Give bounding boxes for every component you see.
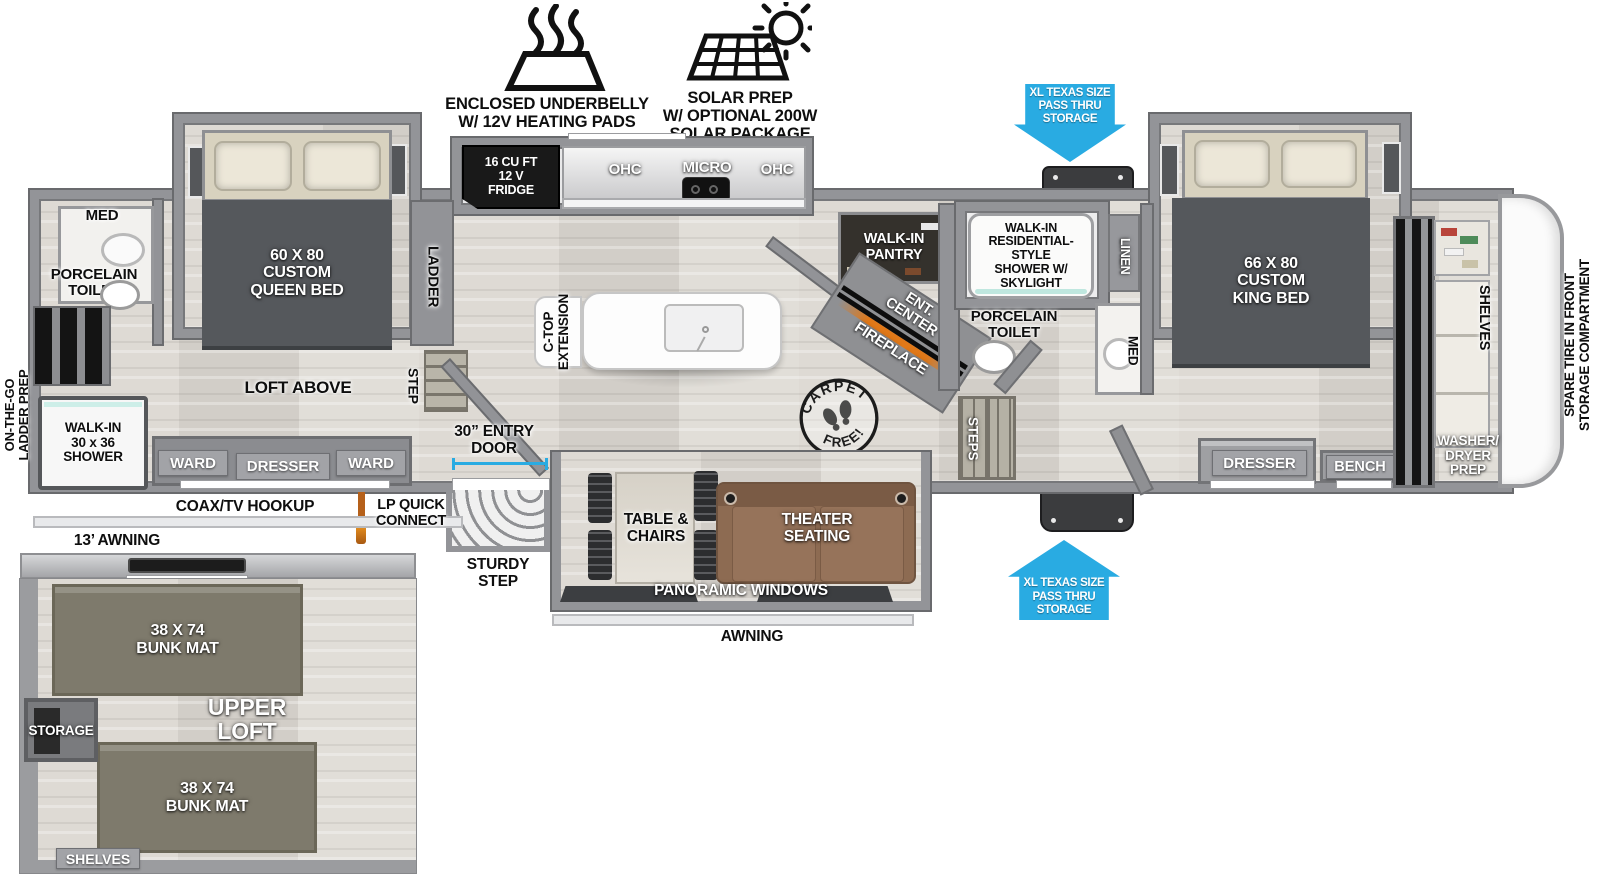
- awning-13-label: 13’ AWNING: [60, 532, 174, 549]
- ladder-prep-label: ON-THE-GO LADDER PREP: [0, 354, 34, 476]
- enclosed-underbelly-label: ENCLOSED UNDERBELLY W/ 12V HEATING PADS: [428, 94, 666, 132]
- rear-dresser-chip: DRESSER: [236, 453, 330, 480]
- kitchen-island: [582, 292, 782, 370]
- ward-left-chip: WARD: [158, 450, 228, 476]
- linen-label: LINEN: [1114, 230, 1134, 282]
- front-window-strip-1: [1210, 480, 1315, 489]
- pass-thru-bottom-label: XL TEXAS SIZE PASS THRU STORAGE: [1024, 577, 1105, 617]
- mid-shower-pan: WALK-IN RESIDENTIAL-STYLE SHOWER W/ SKYL…: [968, 213, 1094, 299]
- queen-bed-label: 60 X 80 CUSTOM QUEEN BED: [250, 247, 343, 300]
- closet-clothes: [1434, 220, 1490, 276]
- theater-seating-label: THEATER SEATING: [752, 510, 882, 546]
- king-bed-headboard: [1182, 130, 1368, 200]
- pass-thru-arrow-bottom: XL TEXAS SIZE PASS THRU STORAGE: [1008, 540, 1120, 620]
- upper-loft-label: UPPER LOFT: [192, 694, 302, 744]
- bunk-top-label: 38 X 74 BUNK MAT: [136, 622, 219, 657]
- steps-label: STEPS: [962, 408, 982, 470]
- coax-label: COAX/TV HOOKUP: [166, 498, 324, 515]
- kitchen-window-strip: [568, 133, 686, 140]
- island-sink: [664, 304, 744, 352]
- king-slide-window-right: [1382, 142, 1401, 194]
- loft-above-label: LOFT ABOVE: [232, 378, 364, 398]
- bunk-mat-bottom: 38 X 74 BUNK MAT: [97, 742, 317, 853]
- spare-tire-label: SPARE TIRE IN FRONT STORAGE COMPARTMENT: [1558, 210, 1598, 480]
- refrigerator: 16 CU FT 12 V FRIDGE: [462, 145, 560, 209]
- loft-storage-label: STORAGE: [22, 722, 100, 740]
- mid-med-label: MED: [1124, 330, 1140, 372]
- awning-label: AWNING: [702, 628, 802, 646]
- queen-bed: 60 X 80 CUSTOM QUEEN BED: [202, 200, 392, 350]
- kitchen-counter: [562, 198, 806, 209]
- pass-thru-arrow-top: XL TEXAS SIZE PASS THRU STORAGE: [1014, 84, 1126, 162]
- pantry-label: WALK-IN PANTRY: [864, 232, 925, 264]
- mid-shower-label: WALK-IN RESIDENTIAL-STYLE SHOWER W/ SKYL…: [971, 222, 1091, 291]
- refrigerator-label: 16 CU FT 12 V FRIDGE: [485, 156, 538, 197]
- ohc-left-label: OHC: [596, 162, 654, 178]
- rear-med-label: MED: [72, 208, 132, 224]
- bunk-bottom-label: 38 X 74 BUNK MAT: [166, 780, 249, 815]
- entry-door-label: 30” ENTRY DOOR: [436, 423, 552, 457]
- cupholder-left: [724, 492, 737, 505]
- washer-dryer-label: WASHER/ DRYER PREP: [1424, 430, 1512, 482]
- bunk-mat-top: 38 X 74 BUNK MAT: [52, 584, 303, 696]
- enclosed-underbelly-icon: [495, 4, 613, 96]
- table-chairs-label: TABLE & CHAIRS: [608, 510, 704, 546]
- mid-toilet-label: PORCELAIN TOILET: [958, 308, 1070, 342]
- queen-bed-headboard: [202, 130, 392, 202]
- panoramic-windows-label: PANORAMIC WINDOWS: [645, 582, 837, 599]
- entry-door-measure: [452, 458, 548, 470]
- front-window-strip-2: [1336, 480, 1392, 489]
- microwave-label: MICRO: [674, 160, 740, 176]
- rv-floorplan-diagram: ENCLOSED UNDERBELLY W/ 12V HEATING PADS …: [0, 0, 1600, 884]
- ward-right-chip: WARD: [336, 450, 406, 476]
- solar-prep-icon: [686, 2, 812, 92]
- cupholder-right: [895, 492, 908, 505]
- rear-window-strip: [180, 480, 390, 489]
- bench-chip: BENCH: [1326, 455, 1394, 479]
- lp-quick-connect-label: LP QUICK CONNECT: [365, 498, 457, 530]
- rear-shower-label: WALK-IN 30 x 36 SHOWER: [63, 421, 123, 466]
- ctop-extension-label: C-TOP EXTENSION: [540, 282, 574, 382]
- awning-rail-main: [552, 614, 914, 626]
- loft-skylight: [128, 558, 246, 573]
- sturdy-step-label: STURDY STEP: [440, 556, 556, 590]
- step-label: STEP: [404, 360, 422, 412]
- loft-shelves-chip: SHELVES: [56, 848, 140, 869]
- rear-sink: [101, 233, 145, 267]
- front-dresser-chip: DRESSER: [1212, 450, 1307, 476]
- lp-connector-icon: [358, 492, 365, 516]
- king-slide-window-left: [1160, 144, 1179, 196]
- king-bed: 66 X 80 CUSTOM KING BED: [1172, 198, 1370, 368]
- king-bed-label: 66 X 80 CUSTOM KING BED: [1233, 255, 1310, 308]
- rear-shower: WALK-IN 30 x 36 SHOWER: [38, 396, 148, 490]
- bedroom-wall: [1140, 203, 1154, 395]
- lp-nozzle-icon: [356, 528, 366, 544]
- ladder-label: LADDER: [418, 222, 446, 332]
- pass-thru-top-label: XL TEXAS SIZE PASS THRU STORAGE: [1030, 87, 1111, 127]
- ohc-right-label: OHC: [748, 162, 806, 178]
- shelves-label: SHELVES: [1472, 276, 1494, 360]
- rear-wardrobe: [33, 306, 111, 386]
